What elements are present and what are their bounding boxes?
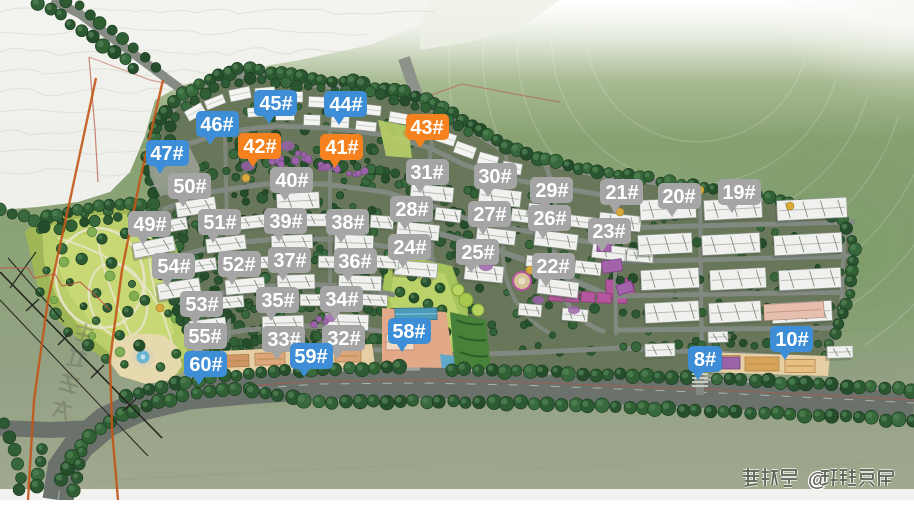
svg-text:29#: 29# xyxy=(535,180,568,202)
svg-text:52#: 52# xyxy=(222,254,255,276)
svg-text:31#: 31# xyxy=(410,162,443,184)
svg-text:44#: 44# xyxy=(329,94,362,116)
svg-text:53#: 53# xyxy=(185,294,218,316)
svg-text:26#: 26# xyxy=(533,208,566,230)
svg-text:36#: 36# xyxy=(338,251,371,273)
svg-text:59#: 59# xyxy=(294,346,327,368)
svg-text:40#: 40# xyxy=(275,170,308,192)
svg-text:10#: 10# xyxy=(775,329,808,351)
svg-text:30#: 30# xyxy=(478,166,511,188)
svg-text:49#: 49# xyxy=(133,214,166,236)
svg-text:47#: 47# xyxy=(150,143,183,165)
svg-text:25#: 25# xyxy=(461,242,494,264)
svg-text:43#: 43# xyxy=(410,117,443,139)
svg-text:39#: 39# xyxy=(269,211,302,233)
svg-text:38#: 38# xyxy=(331,212,364,234)
svg-text:21#: 21# xyxy=(605,182,638,204)
svg-text:8#: 8# xyxy=(694,349,716,371)
svg-text:58#: 58# xyxy=(392,321,425,343)
svg-text:24#: 24# xyxy=(393,237,426,259)
svg-text:54#: 54# xyxy=(157,256,190,278)
svg-text:51#: 51# xyxy=(203,212,236,234)
svg-text:45#: 45# xyxy=(259,93,292,115)
svg-text:27#: 27# xyxy=(473,204,506,226)
svg-text:23#: 23# xyxy=(592,221,625,243)
svg-text:20#: 20# xyxy=(662,186,695,208)
svg-text:55#: 55# xyxy=(188,326,221,348)
svg-text:22#: 22# xyxy=(536,256,569,278)
svg-text:35#: 35# xyxy=(261,290,294,312)
svg-text:60#: 60# xyxy=(189,354,222,376)
svg-text:37#: 37# xyxy=(273,250,306,272)
svg-text:19#: 19# xyxy=(722,182,755,204)
svg-text:28#: 28# xyxy=(395,199,428,221)
svg-text:41#: 41# xyxy=(325,137,358,159)
svg-text:46#: 46# xyxy=(200,114,233,136)
svg-text:34#: 34# xyxy=(325,289,358,311)
svg-text:50#: 50# xyxy=(173,176,206,198)
svg-text:42#: 42# xyxy=(243,136,276,158)
